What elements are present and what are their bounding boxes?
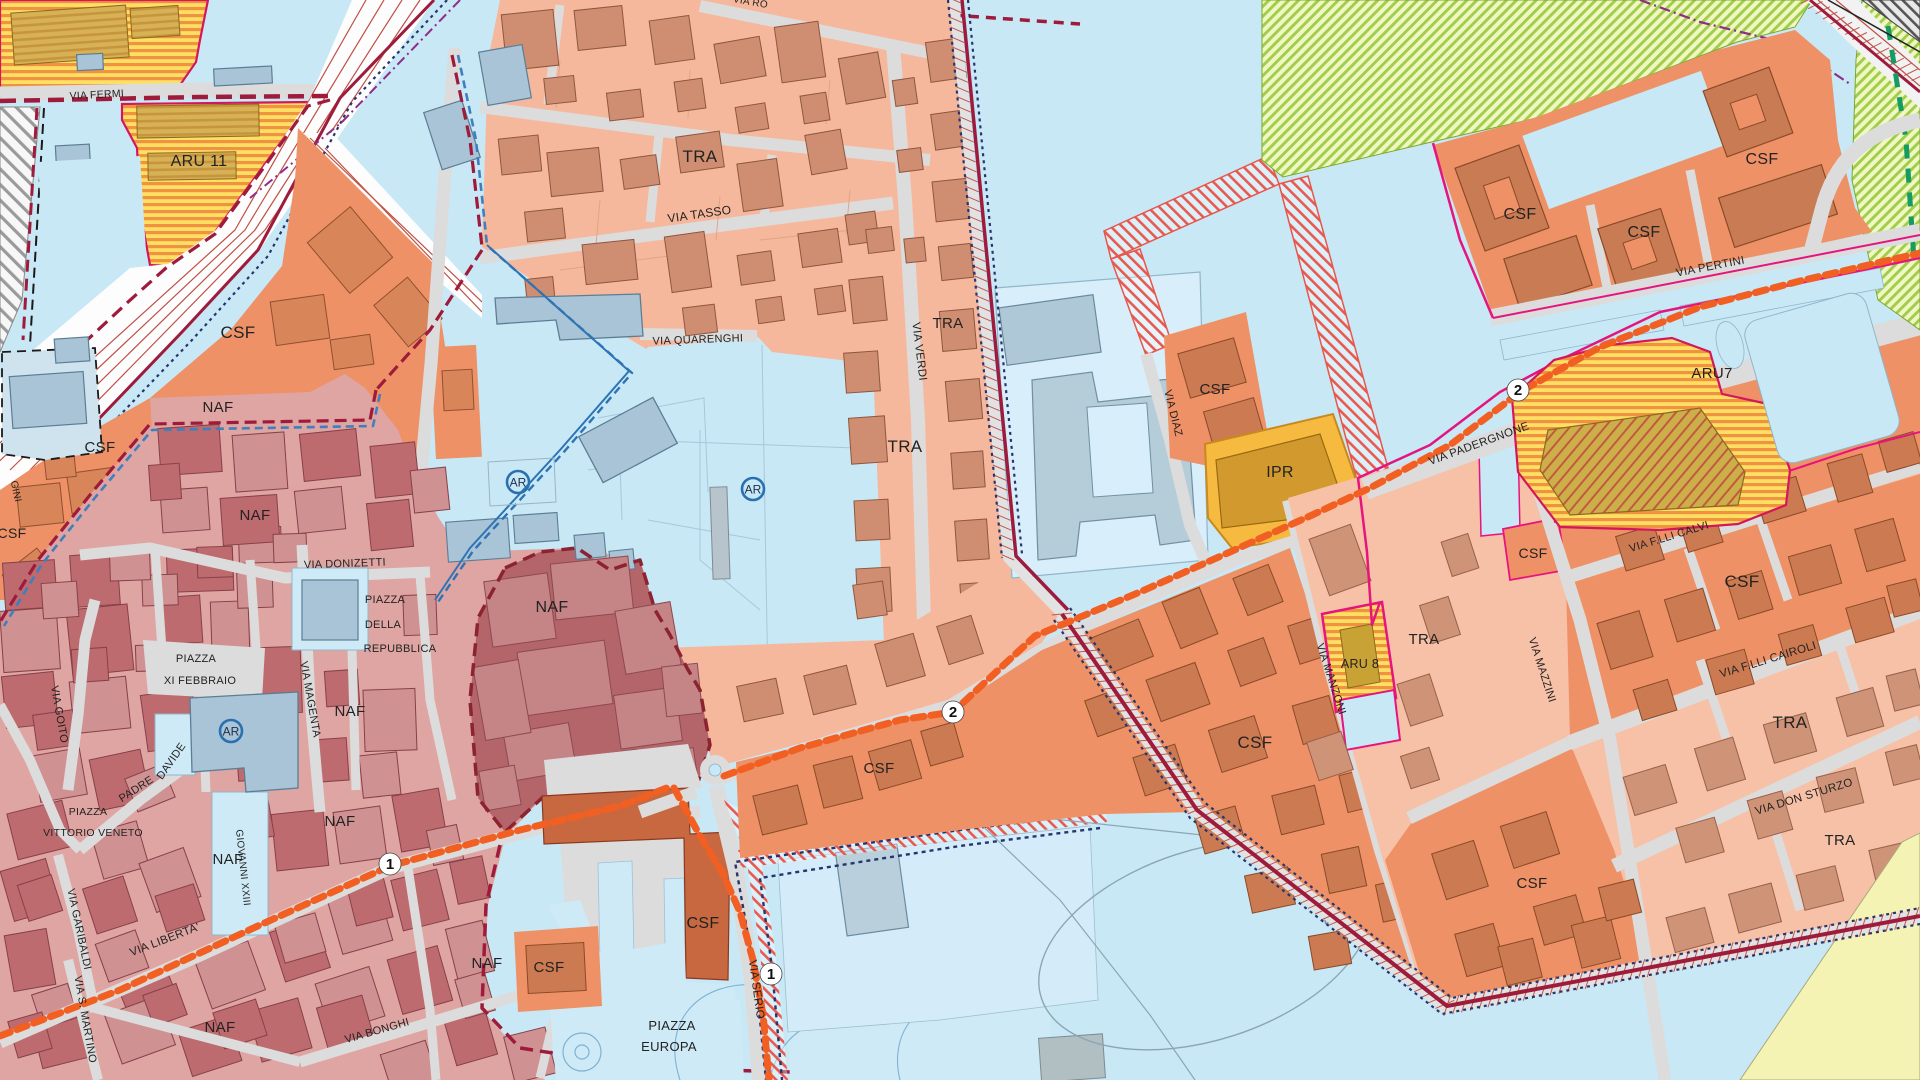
svg-text:2: 2 [949, 704, 957, 721]
svg-text:CSF: CSF [1725, 572, 1760, 591]
svg-text:TRA: TRA [1773, 713, 1808, 732]
svg-text:AR: AR [223, 725, 240, 739]
svg-text:VITTORIO VENETO: VITTORIO VENETO [43, 827, 143, 839]
svg-text:NAF: NAF [205, 1019, 236, 1036]
svg-text:IPR: IPR [1266, 464, 1294, 481]
svg-text:REPUBBLICA: REPUBBLICA [364, 643, 437, 655]
svg-text:XI FEBBRAIO: XI FEBBRAIO [164, 675, 237, 687]
svg-text:CSF: CSF [1519, 545, 1548, 561]
svg-text:NAF: NAF [203, 399, 234, 416]
svg-text:CSF: CSF [864, 760, 895, 777]
svg-text:TRA: TRA [888, 437, 923, 456]
svg-text:PIAZZA: PIAZZA [69, 806, 108, 818]
svg-text:NAF: NAF [335, 703, 366, 720]
svg-text:ARU 11: ARU 11 [171, 153, 228, 170]
svg-text:1: 1 [767, 966, 775, 983]
svg-text:CSF: CSF [1238, 733, 1273, 752]
svg-text:NAF: NAF [240, 507, 271, 524]
svg-text:NAF: NAF [472, 955, 503, 972]
svg-text:CSF: CSF [1517, 875, 1548, 892]
svg-text:TRA: TRA [933, 315, 964, 332]
svg-text:CSF: CSF [85, 439, 116, 456]
svg-text:ARU 8: ARU 8 [1341, 657, 1379, 671]
svg-text:ARU7: ARU7 [1691, 365, 1732, 382]
svg-text:CSF: CSF [1746, 151, 1779, 168]
svg-text:DELLA: DELLA [365, 619, 402, 631]
svg-text:CSF: CSF [1628, 224, 1661, 241]
svg-text:CSF: CSF [1200, 381, 1231, 398]
svg-text:CSF: CSF [0, 525, 26, 541]
svg-text:NAF: NAF [325, 813, 356, 830]
svg-text:PIAZZA: PIAZZA [365, 594, 406, 606]
svg-text:NAF: NAF [536, 599, 569, 616]
svg-text:CSF: CSF [687, 915, 720, 932]
svg-text:PIAZZA: PIAZZA [648, 1018, 695, 1033]
svg-text:TRA: TRA [683, 147, 718, 166]
svg-text:AR: AR [510, 476, 527, 490]
svg-text:PIAZZA: PIAZZA [176, 653, 217, 665]
svg-text:EUROPA: EUROPA [641, 1039, 697, 1054]
svg-text:2: 2 [1514, 382, 1522, 399]
svg-text:CSF: CSF [1504, 206, 1537, 223]
svg-text:CSF: CSF [534, 959, 565, 976]
svg-text:AR: AR [745, 483, 762, 497]
svg-text:1: 1 [386, 856, 394, 873]
svg-text:TRA: TRA [1825, 832, 1856, 849]
svg-text:CSF: CSF [221, 323, 256, 342]
svg-text:TRA: TRA [1409, 631, 1440, 648]
